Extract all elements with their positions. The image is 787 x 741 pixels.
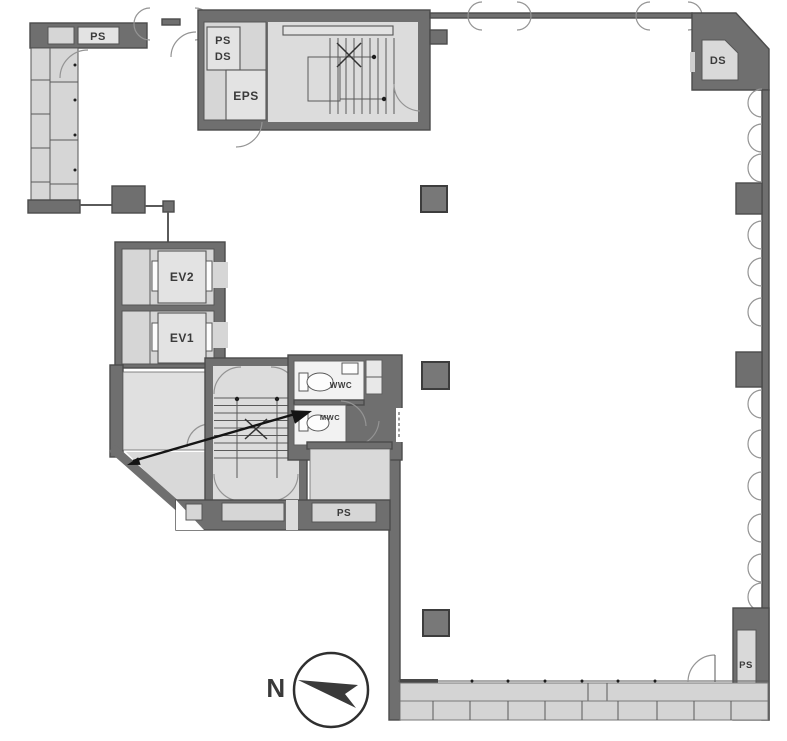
door-arc bbox=[171, 32, 196, 57]
pillar bbox=[112, 186, 145, 213]
north-label: N bbox=[266, 673, 285, 703]
label-ps-ds-1: PS bbox=[215, 35, 231, 47]
north-needle-icon bbox=[298, 680, 358, 708]
pilaster bbox=[736, 183, 762, 214]
stairwell-floor bbox=[268, 22, 418, 122]
stair-landing bbox=[283, 26, 393, 35]
label-wwc: WWC bbox=[330, 381, 352, 390]
shaft-box bbox=[48, 27, 74, 44]
lower-west-wall bbox=[389, 445, 400, 720]
store-room bbox=[310, 449, 390, 500]
bottom-perimeter-band bbox=[389, 445, 768, 720]
wall-opening bbox=[396, 408, 404, 442]
top-right-ds-corner: DS bbox=[690, 13, 769, 90]
ev1-door-slot bbox=[212, 322, 228, 348]
label-ps-core: PS bbox=[337, 508, 351, 519]
shaft-box bbox=[186, 504, 202, 520]
column bbox=[423, 610, 449, 636]
label-ps-right: PS bbox=[739, 660, 753, 671]
north-compass: N bbox=[266, 653, 368, 727]
perimeter-cell-strip bbox=[31, 48, 78, 213]
floor-plan: PS PS DS EPS bbox=[0, 0, 787, 741]
wall-cap bbox=[28, 200, 80, 213]
elevator-block: EV2 EV1 bbox=[115, 242, 228, 368]
label-ev1: EV1 bbox=[170, 331, 194, 345]
hall-floor bbox=[123, 372, 211, 450]
sill-row-lower bbox=[400, 701, 768, 720]
label-mwc: MWC bbox=[320, 413, 340, 422]
pilaster bbox=[736, 352, 762, 387]
label-eps: EPS bbox=[233, 89, 259, 103]
door-slot bbox=[690, 52, 695, 72]
top-perimeter-wall bbox=[430, 2, 702, 30]
right-perimeter-wall: PS bbox=[733, 89, 769, 720]
column bbox=[422, 362, 449, 389]
core-connector bbox=[79, 186, 174, 243]
door-slot bbox=[286, 500, 298, 530]
ev2-door-slot bbox=[212, 262, 228, 288]
top-left-shaft-assembly: PS bbox=[28, 23, 147, 213]
structural-columns bbox=[421, 186, 449, 636]
north-stair-core: PS DS EPS bbox=[198, 10, 447, 147]
ps-ds-shaft-box bbox=[207, 27, 240, 70]
label-ds-corner: DS bbox=[710, 55, 726, 67]
door-arc bbox=[688, 655, 715, 682]
label-ps-top-left: PS bbox=[90, 31, 106, 43]
sill-row-upper bbox=[400, 683, 768, 701]
label-ps-ds-2: DS bbox=[215, 51, 231, 63]
window-arcs bbox=[748, 89, 762, 611]
shaft-box bbox=[222, 503, 284, 521]
label-ev2: EV2 bbox=[170, 270, 194, 284]
sink-icon bbox=[342, 363, 358, 374]
column bbox=[421, 186, 447, 212]
